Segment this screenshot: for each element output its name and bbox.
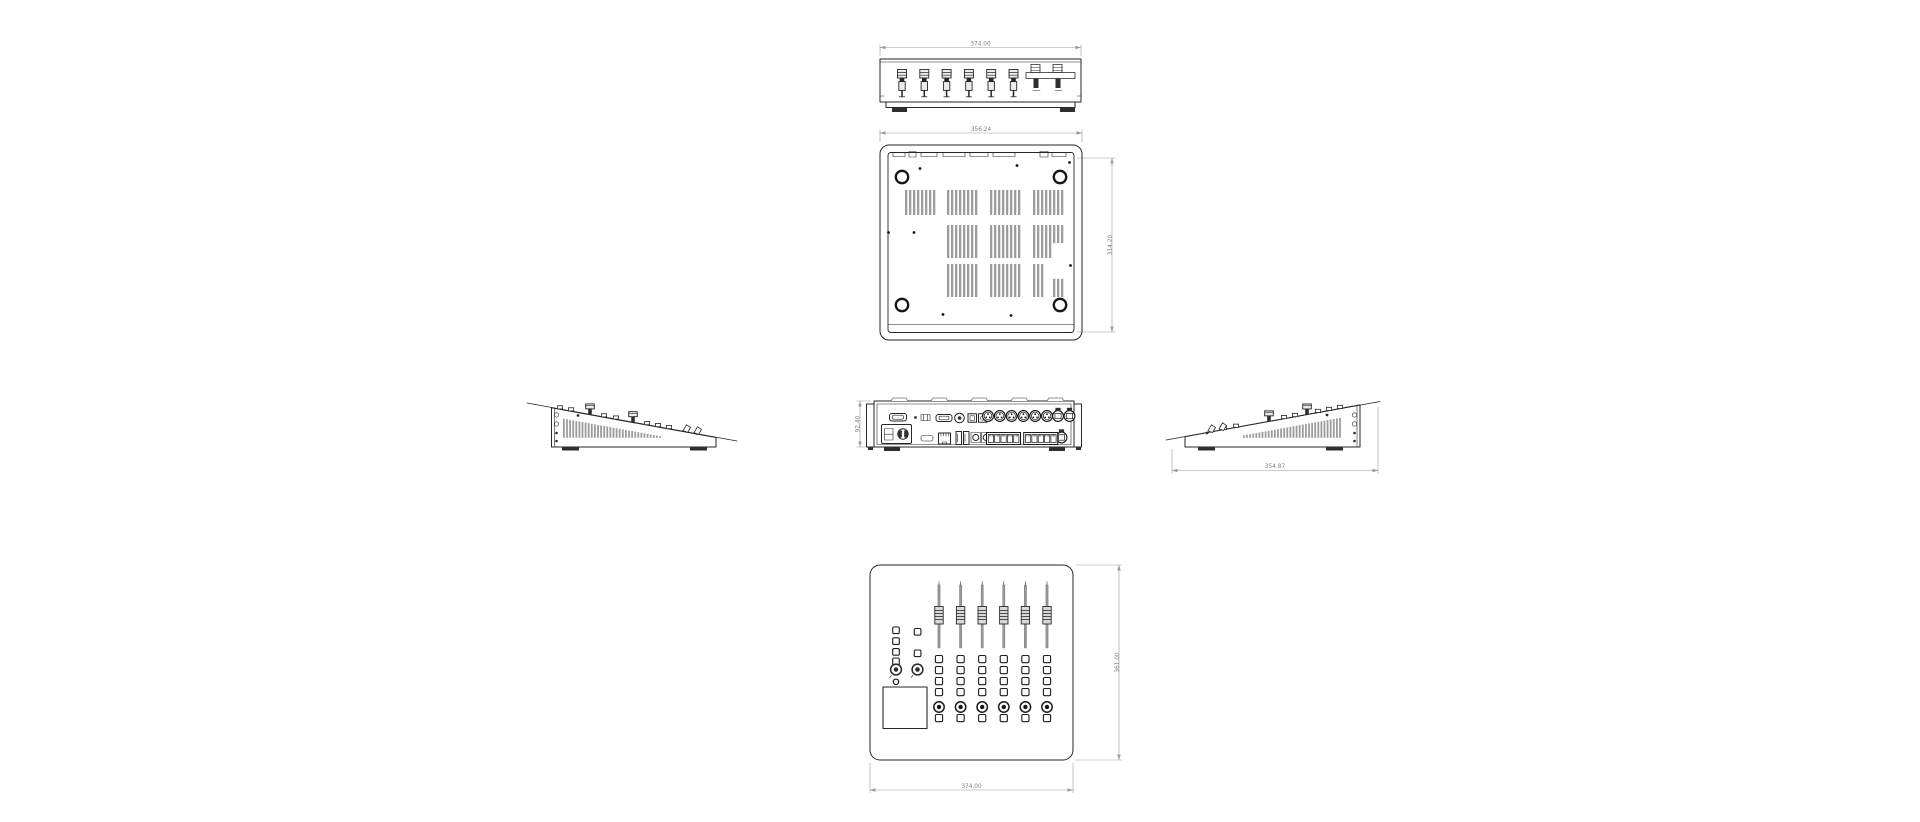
dsub-connector [890,414,907,422]
side-vent-slat [1333,419,1335,438]
side-knob-low [644,422,649,425]
rear-ear-right [1074,404,1082,447]
screw-dot [1206,432,1209,435]
side-vent-slat [569,420,571,438]
rubber-foot [896,299,908,311]
front-foot-left [892,108,907,113]
side-vent-slat [1317,422,1319,438]
front-bracket [1026,65,1075,91]
square-button [957,667,964,674]
side-knob-low [655,424,660,427]
square-button [1043,667,1050,674]
side-vent-slat [566,419,568,438]
fader-knob-front [964,70,973,97]
usb-port [964,432,970,445]
vent-group [1033,190,1063,215]
right-rear-connector [1352,413,1356,417]
ethercon-connector [1064,408,1075,422]
square-button [957,715,964,722]
side-vent-slat [653,435,655,438]
right-knobs-and-vents [1208,404,1343,438]
side-vent-slat [1243,435,1245,438]
front-foot-right [1060,108,1075,113]
side-knob-low [1337,405,1342,408]
side-vent-slat [613,428,615,438]
side-vent-slat [616,428,618,438]
square-button [1043,678,1050,685]
screw-dot [1069,264,1072,267]
square-button [957,678,964,685]
side-vent-slat [1271,430,1273,438]
square-button [935,667,942,674]
bottom-outer-outline [880,145,1082,340]
right-foot [1326,447,1343,451]
fader-knob-front [1009,70,1018,97]
side-vent-slat [1262,432,1264,438]
front-fader-knobs [898,70,1019,97]
vent-group [1033,264,1063,297]
square-button [1022,715,1029,722]
bracket-stem [1056,79,1061,89]
side-knob-tall [586,404,595,415]
view-right-side: 354.87 [1166,402,1380,474]
left-rear-connector [554,413,558,417]
square-button [1022,689,1029,696]
vent-group [947,264,977,297]
side-vent-slat [628,430,630,437]
side-encoder-wedge [683,425,691,433]
optical-port [968,414,977,423]
channel-strip [999,582,1009,722]
bracket-bar [1026,73,1075,79]
fader-cap [978,607,986,625]
front-chassis-outline [880,59,1081,102]
side-knob-tall [1265,411,1274,422]
square-button [1000,689,1007,696]
side-vent-slat [625,430,627,438]
side-vent-slat [1324,421,1326,438]
side-vent-slat [622,429,624,437]
side-vent-slat [1290,427,1292,438]
rear-foot [1049,447,1065,451]
side-vent-slat [610,427,612,438]
side-vent-slat [1268,431,1270,438]
side-vent-slat [1249,434,1251,438]
side-vent-slat [1277,429,1279,438]
right-foot [1198,447,1215,451]
vent-group [1033,225,1063,258]
bracket-stem [1034,79,1039,89]
technical-drawing-canvas: 374.00 356.24 314.20 [0,0,1920,822]
side-knob-low [1326,407,1331,410]
side-vent-slat [634,432,636,438]
ethercon-connector [1053,408,1064,422]
square-button [1043,715,1050,722]
channel-strip [934,582,944,722]
top-channel-strips [934,582,1052,722]
xlr-connector [1042,411,1053,422]
screw-dot [555,440,558,443]
square-button [979,715,986,722]
side-knob-tall [1303,404,1312,415]
side-knob-low [1233,424,1238,427]
xlr-connector [994,411,1005,422]
square-button [1000,667,1007,674]
side-knob-low [1315,409,1320,412]
square-button [914,629,921,636]
left-foot [562,447,579,451]
square-button [893,649,900,656]
fader-cap [1021,607,1029,625]
vent-group [990,264,1020,297]
square-button [979,678,986,685]
side-knob-low [613,416,618,419]
vent-group [990,225,1020,258]
side-vent-slat [572,420,574,437]
channel-strip [1042,582,1052,722]
view-bottom: 356.24 314.20 [880,127,1116,340]
rear-ear-foot [1076,447,1081,450]
side-vent-slat [591,424,593,438]
fader-cap [1000,607,1008,625]
side-vent-slat [1314,422,1316,437]
side-vent-slat [563,419,565,438]
side-vent-slat [1255,433,1257,438]
square-button [979,667,986,674]
side-vent-slat [1321,421,1323,438]
side-vent-slat [1299,425,1301,438]
channel-strip [955,582,965,722]
vent-group [990,190,1020,215]
side-vent-slat [637,432,639,438]
screw-dot [577,414,580,417]
side-vent-slat [631,431,633,438]
rear-foot [884,447,900,451]
rubber-foot [1054,299,1066,311]
left-rear-connector [554,422,558,426]
square-button [1043,656,1050,663]
fader-knob-front [898,70,907,97]
rj45-bank [987,433,1021,445]
hdmi-port [921,436,933,442]
square-button [914,650,921,657]
screw-dot [1068,161,1071,164]
dim-label-rear-height: 92.40 [856,415,862,432]
screw-dot [1353,432,1356,435]
dim-label-top-width: 374.00 [961,784,982,790]
display-screen [883,687,927,729]
side-vent-slat [1339,418,1341,438]
side-knob-low [601,414,606,417]
rear-xlr-and-rj45 [983,408,1075,445]
top-left-button-columns [893,627,921,665]
side-vent-slat [1336,418,1338,437]
screw-dot [914,416,917,419]
side-vent-slat [1305,424,1307,438]
screw-dot [1326,414,1329,417]
rubber-foot [896,171,908,183]
side-vent-slat [1283,428,1285,438]
square-button [935,678,942,685]
top-panel-outline [870,565,1073,760]
square-button [1000,656,1007,663]
dim-label-right-depth: 354.87 [1265,464,1286,470]
left-knobs-and-vents [557,404,701,438]
screw-dot [1010,314,1013,317]
side-vent-slat [582,422,584,438]
bracket-cap [1053,65,1062,73]
small-knob [893,679,898,684]
fader-knob-front [920,70,929,97]
side-vent-slat [1259,432,1261,437]
side-knob-low [1281,415,1286,418]
side-encoder-wedge [694,427,702,435]
left-foot [690,447,707,451]
side-vent-slat [1308,423,1310,437]
square-button [893,627,900,634]
side-vent-slat [594,424,596,437]
screw-dot [919,167,922,170]
square-button [979,656,986,663]
side-vent-slat [603,426,605,438]
side-vent-slat [1286,427,1288,437]
side-knob-tall [629,412,638,423]
channel-strip [1020,582,1030,722]
square-button [1000,715,1007,722]
side-vent-slat [597,425,599,438]
side-vent-slat [600,425,602,437]
dim-label-bottom-width: 356.24 [971,127,992,133]
square-button [1022,656,1029,663]
rubber-foot [1054,171,1066,183]
rj45-bank [1024,433,1058,445]
square-button [1022,678,1029,685]
rear-ear-foot [868,447,873,450]
xlr-connector [1006,411,1017,422]
bottom-feet-and-vents [887,161,1072,317]
front-base [886,102,1075,108]
square-button [935,656,942,663]
screw-dot [942,313,945,316]
footswitch-jack [921,415,930,421]
square-button [935,715,942,722]
side-knob-low [568,408,573,411]
side-vent-slat [1296,426,1298,438]
vent-group [947,190,977,215]
screw-dot [1016,164,1019,167]
side-vent-slat [619,429,621,438]
bracket-cap [1031,65,1040,73]
side-vent-slat [1327,420,1329,438]
side-vent-slat [641,433,643,438]
side-vent-slat [1302,425,1304,438]
fader-knob-front [942,70,951,97]
side-vent-slat [659,436,661,438]
screw-dot [913,231,916,234]
view-left-side [527,403,737,451]
top-left-cluster [883,627,927,729]
side-vent-slat [644,433,646,438]
dsub-connector [936,415,952,422]
vent-group [947,225,977,258]
technical-drawing-page: 374.00 356.24 314.20 [0,0,1920,822]
xlr-connector [983,411,994,422]
channel-strip [977,582,987,722]
view-top-panel: 374.00 361.00 [870,565,1122,793]
side-vent-slat [1274,430,1276,438]
dim-label-front-width: 374.00 [970,42,991,48]
side-knob-low [557,406,562,409]
xlr-connector [1030,411,1041,422]
side-knob-low [1292,413,1297,416]
square-button [957,689,964,696]
screw-dot [555,432,558,435]
side-vent-slat [1265,431,1267,437]
xlr-connector [1018,411,1029,422]
side-vent-slat [1280,429,1282,438]
square-button [979,689,986,696]
right-rear-connector [1352,422,1356,426]
vent-group [905,190,935,215]
view-front-elevation: 374.00 [880,42,1081,113]
square-button [935,689,942,696]
square-button [1000,678,1007,685]
dim-label-top-depth: 361.00 [1115,652,1121,673]
dim-label-bottom-depth: 314.20 [1108,235,1114,256]
fader-cap [1043,607,1051,625]
square-button [1043,689,1050,696]
side-vent-slat [579,422,581,438]
side-vent-slat [1252,434,1254,438]
side-vent-slat [1311,423,1313,438]
square-button [957,656,964,663]
side-vent-slat [647,434,649,438]
side-vent-slat [606,427,608,438]
usb-port [956,432,962,445]
fader-knob-front [987,70,996,97]
rear-left-connectors [882,413,992,444]
side-vent-slat [650,434,652,437]
side-vent-slat [1330,420,1332,438]
side-vent-slat [1293,426,1295,438]
screw-dot [1353,440,1356,443]
square-button [893,638,900,645]
rear-ear-left [867,404,875,447]
side-vent-slat [1246,435,1248,438]
side-vent-slat [575,421,577,438]
fader-cap [935,607,943,625]
square-button [1022,667,1029,674]
fader-cap [956,607,964,625]
side-knob-low [666,425,671,428]
screw-dot [887,231,890,234]
side-vent-slat [588,423,590,438]
side-vent-slat [585,423,587,438]
side-vent-slat [656,436,658,438]
view-rear: 92.40 [856,398,1082,451]
